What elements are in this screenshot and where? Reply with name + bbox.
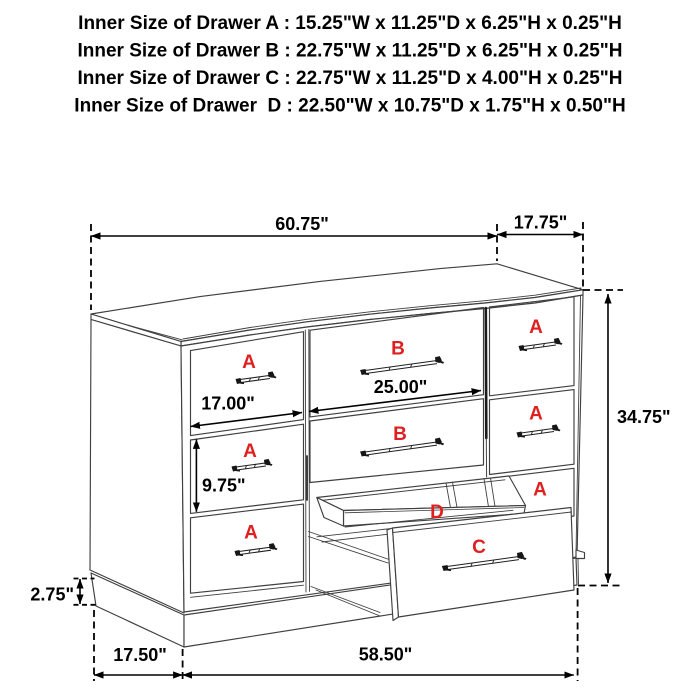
svg-text:Inner Size of Drawer A : 15.25: Inner Size of Drawer A : 15.25"W x 11.25…	[78, 13, 622, 34]
svg-text:25.00": 25.00"	[374, 377, 428, 397]
svg-text:Inner Size of Drawer D : 22.5: Inner Size of Drawer D : 22.50"W x 10.75…	[74, 96, 625, 117]
svg-text:B: B	[393, 424, 407, 445]
svg-text:A: A	[244, 523, 258, 544]
svg-text:A: A	[243, 441, 257, 462]
svg-text:C: C	[472, 537, 486, 558]
svg-text:17.50": 17.50"	[113, 645, 167, 665]
svg-text:60.75": 60.75"	[275, 214, 329, 234]
svg-text:17.00": 17.00"	[201, 394, 255, 414]
svg-text:A: A	[242, 352, 256, 373]
svg-text:9.75": 9.75"	[202, 476, 246, 496]
svg-text:A: A	[529, 404, 543, 425]
svg-text:Inner Size of Drawer B : 22.75: Inner Size of Drawer B : 22.75"W x 11.25…	[77, 41, 622, 62]
svg-text:A: A	[529, 317, 543, 338]
svg-text:Inner Size of Drawer C : 22.75: Inner Size of Drawer C : 22.75"W x 11.25…	[77, 68, 622, 89]
svg-text:D: D	[430, 502, 444, 523]
svg-text:58.50": 58.50"	[359, 645, 413, 665]
svg-text:34.75": 34.75"	[617, 407, 671, 427]
svg-text:B: B	[391, 339, 405, 360]
svg-text:17.75": 17.75"	[514, 213, 568, 233]
svg-text:A: A	[533, 480, 547, 501]
svg-text:2.75": 2.75"	[30, 585, 74, 605]
